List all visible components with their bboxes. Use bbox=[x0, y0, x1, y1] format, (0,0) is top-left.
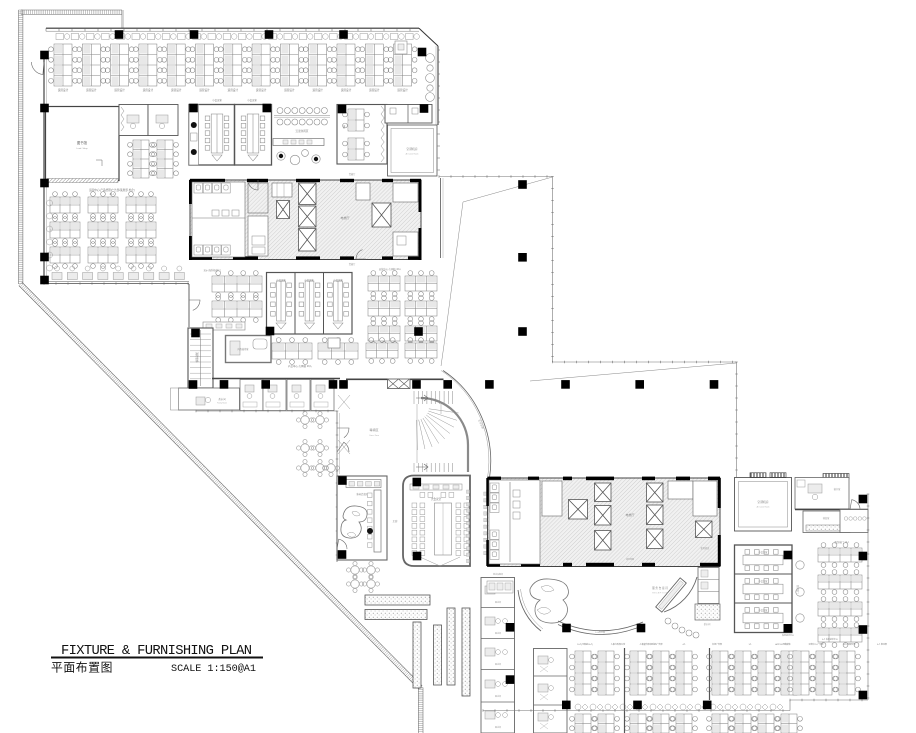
svg-text:Lend. Shop: Lend. Shop bbox=[76, 148, 88, 150]
svg-text:运营设计: 运营设计 bbox=[143, 88, 154, 92]
svg-text:洽谈休闲区: 洽谈休闲区 bbox=[296, 129, 309, 133]
svg-text:图书馆: 图书馆 bbox=[77, 140, 88, 145]
svg-text:1人: 1人 bbox=[748, 643, 751, 646]
svg-text:运营设计: 运营设计 bbox=[369, 88, 380, 92]
svg-text:运营设计: 运营设计 bbox=[171, 88, 182, 92]
svg-text:产品中心-大网格 46人: 产品中心-大网格 46人 bbox=[288, 364, 313, 368]
svg-text:运营设计: 运营设计 bbox=[397, 88, 408, 92]
svg-text:SCALE 1:150@A1: SCALE 1:150@A1 bbox=[171, 663, 256, 675]
svg-text:Air Cond. Room: Air Cond. Room bbox=[757, 506, 770, 509]
svg-text:电梯厅: 电梯厅 bbox=[625, 512, 634, 517]
svg-text:消防楼梯: 消防楼梯 bbox=[195, 352, 199, 363]
svg-text:运营设计: 运营设计 bbox=[341, 88, 352, 92]
svg-text:运营设计: 运营设计 bbox=[256, 88, 267, 92]
svg-text:R E C E P T I O N: R E C E P T I O N bbox=[652, 593, 668, 595]
svg-text:空调机房: 空调机房 bbox=[406, 147, 417, 151]
svg-text:46人: 46人 bbox=[109, 192, 115, 196]
svg-text:Pantry Room: Pantry Room bbox=[217, 402, 227, 405]
svg-text:运营设计: 运营设计 bbox=[86, 88, 97, 92]
svg-text:空调机房: 空调机房 bbox=[757, 500, 768, 504]
svg-text:运营设计: 运营设计 bbox=[58, 88, 69, 92]
svg-text:茶水间: 茶水间 bbox=[218, 397, 226, 401]
svg-text:平面布置图: 平面布置图 bbox=[51, 661, 113, 675]
svg-text:大会议室: 大会议室 bbox=[431, 497, 442, 501]
svg-text:运营中心(产品经理/广告部/策划部·外企): 运营中心(产品经理/广告部/策划部·外企) bbox=[89, 188, 135, 192]
svg-text:运营设计: 运营设计 bbox=[228, 88, 239, 92]
svg-text:走廊: 走廊 bbox=[393, 519, 398, 523]
svg-text:运营设计: 运营设计 bbox=[199, 88, 210, 92]
svg-text:小会议室: 小会议室 bbox=[247, 98, 257, 102]
svg-text:服 务 台 接 待: 服 务 台 接 待 bbox=[652, 586, 668, 590]
svg-text:运营设计: 运营设计 bbox=[284, 88, 295, 92]
svg-text:等候区: 等候区 bbox=[369, 427, 378, 432]
svg-text:电梯厅: 电梯厅 bbox=[340, 215, 349, 220]
svg-text:研: 研 bbox=[343, 125, 346, 129]
svg-text:运营设计: 运营设计 bbox=[114, 88, 125, 92]
svg-text:运营设计: 运营设计 bbox=[313, 88, 324, 92]
svg-text:小会议室: 小会议室 bbox=[212, 98, 222, 102]
svg-text:4人: 4人 bbox=[682, 643, 685, 646]
svg-text:Air Cond. Room: Air Cond. Room bbox=[406, 153, 419, 156]
svg-text:Cons. Zone: Cons. Zone bbox=[369, 435, 379, 437]
